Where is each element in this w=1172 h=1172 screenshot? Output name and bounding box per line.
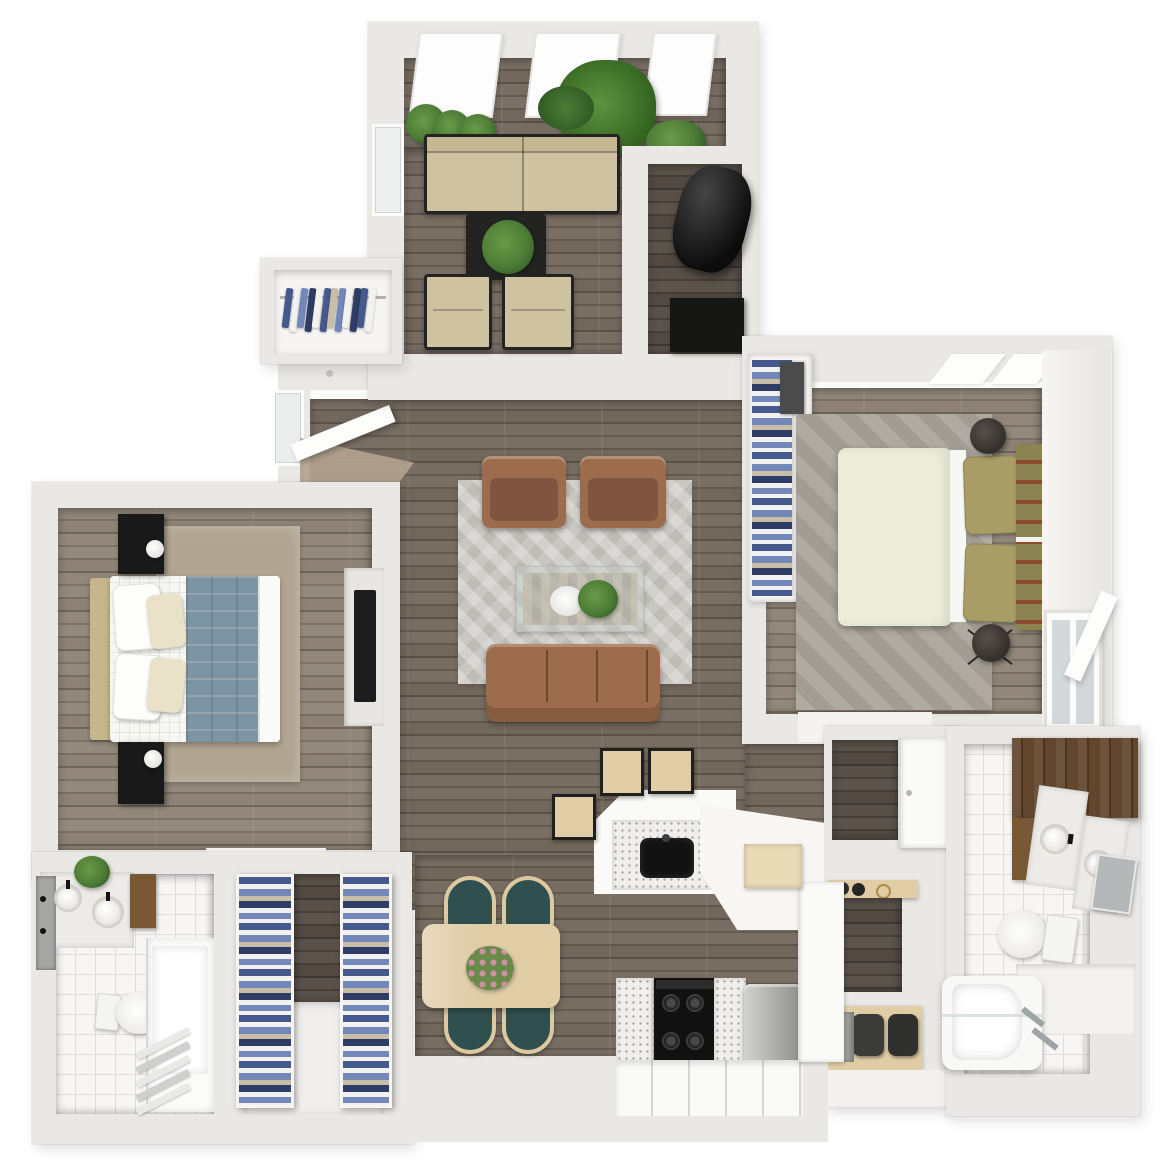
tall-cabinet [798,882,844,1062]
sun-chair-a [424,274,492,350]
kitchen-faucet [662,834,670,842]
bar-stool-1 [600,748,644,796]
counter-stove-right [714,978,746,1066]
bed-right-duvet [838,448,952,626]
armchair-left-seat [490,478,558,521]
sun-loveseat [424,134,620,214]
armchair-right [580,456,666,528]
burner-2 [686,994,704,1012]
wood-shelf-kitchen [744,844,802,888]
dining-flowers [466,946,514,990]
faucet-left-2 [106,892,110,901]
floor-nook-top [832,740,900,840]
bed-left-accent-1 [145,592,187,650]
sun-loveseat-split [522,137,524,211]
bed-left-throw [186,576,262,742]
palm-frond [538,86,594,130]
trash-can [744,984,802,1064]
stove [654,978,716,1068]
bar-stool-3 [552,794,596,840]
burner-4 [686,1032,704,1050]
stool-right-2 [972,624,1010,662]
floor-plan-canvas [0,0,1172,1172]
bed-right-pillow-1 [963,455,1022,535]
tub-right-basin [952,984,1022,1060]
coffee-table-plant [578,580,618,618]
bed-left-headboard [90,578,112,740]
stove-controls [656,980,714,989]
stool-right-1 [970,418,1006,454]
mirror-right [1090,853,1137,914]
mirror-left [36,876,56,970]
burner-1 [662,994,680,1012]
floor-nook-bottom [828,1070,950,1106]
sofa-cushion-lines [498,650,648,702]
tv-left [354,590,376,702]
closet-right-box [780,362,804,414]
storage-box [670,298,744,352]
bed-left-accent-2 [145,656,186,713]
sink-right-a [1040,824,1070,854]
sun-chair-a-line [433,309,483,311]
window-sunroom-left [372,124,404,216]
lamp-left-1 [146,540,164,558]
sun-chair-b-line [511,309,565,311]
nook-bowl-2 [852,883,865,896]
burner-3 [662,1032,680,1050]
nook-pouf-1 [852,1014,884,1056]
nook-cabinet-handle [906,790,912,796]
bed-right-pillow-2 [963,543,1022,623]
bed-left-sheetfold [258,576,280,742]
faucet-left-1 [66,880,70,889]
toilet-right-bowl [998,910,1046,958]
sun-table-plant [482,220,534,274]
armchair-left [482,456,566,528]
linen-unit-1 [236,874,294,1108]
sun-chair-b [502,274,574,350]
sconce-1 [40,896,46,902]
lamp-left-2 [144,750,162,768]
counter-stove-left [616,978,654,1066]
kitchen-sink [640,838,694,878]
medicine-cabinet-left [130,874,156,928]
vanity-plant-left [74,856,110,888]
sconce-2 [40,928,46,934]
nook-pouf-2 [888,1014,918,1056]
bar-stool-2 [648,748,694,794]
toilet-right-tank [1041,914,1079,964]
linen-unit-2 [340,874,392,1108]
cabinet-front [616,1060,804,1116]
sofa-living [486,644,660,722]
ceiling-detector-1 [326,370,333,377]
armchair-right-seat [588,478,658,521]
nook-ring [876,884,891,899]
